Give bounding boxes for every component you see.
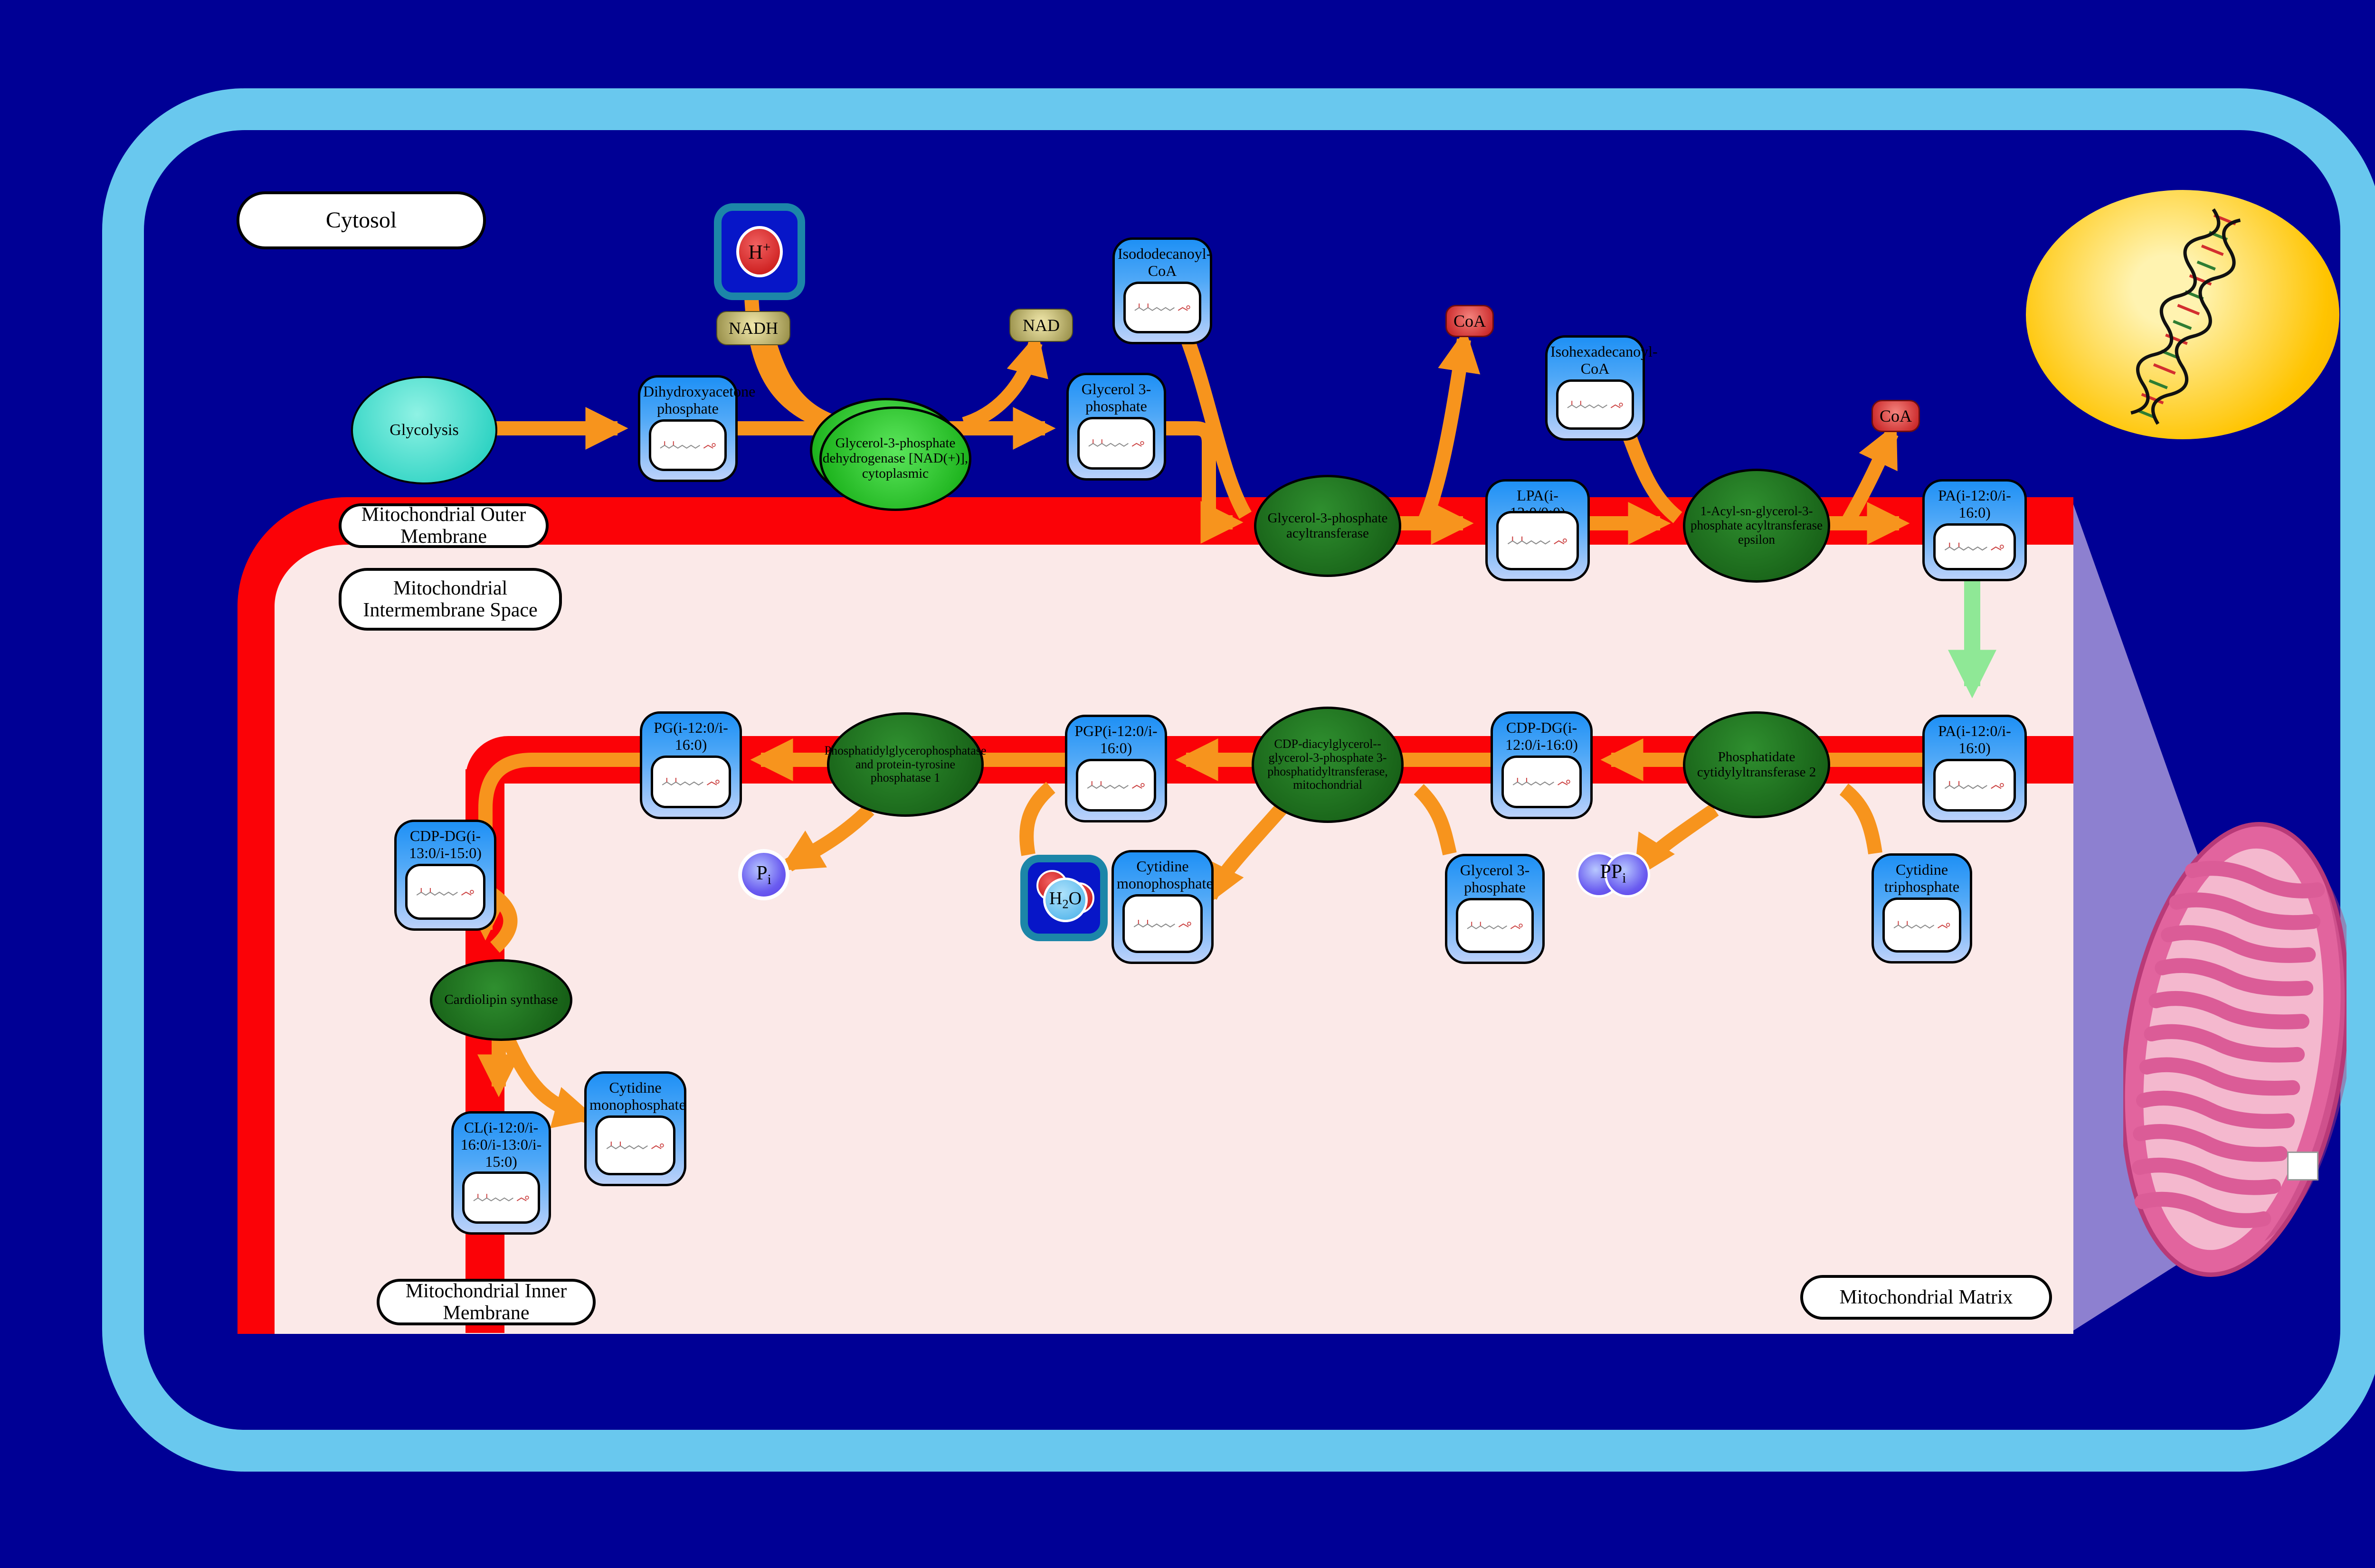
zoom-target-marker [2287,1152,2318,1181]
node-cdpdg-13-15[interactable]: CDP-DG(i-13:0/i-15:0) [394,820,496,931]
structure-image [595,1115,675,1175]
structure-image [1123,282,1201,333]
node-lpa[interactable]: LPA(i-12:0/0:0) [1485,479,1590,581]
node-cmp-bottom[interactable]: Cytidine monophosphate [584,1071,686,1186]
enzyme-gpd1[interactable]: Glycerol-3-phosphate dehydrogenase [NAD(… [819,406,971,511]
enzyme-pgs1[interactable]: CDP-diacylglycerol--glycerol-3-phosphate… [1252,707,1404,823]
node-pa-inner[interactable]: PA(i-12:0/i-16:0) [1922,715,2027,822]
label-cytosol: Cytosol [237,191,486,249]
process-glycolysis[interactable]: Glycolysis [351,376,497,484]
label-inner-membrane: Mitochondrial Inner Membrane [377,1279,596,1325]
enzyme-agpat-epsilon[interactable]: 1-Acyl-sn-glycerol-3-phosphate acyltrans… [1683,469,1830,583]
structure-image [1933,523,2016,570]
ion-ppi[interactable]: PPi [1576,851,1650,897]
enzyme-gpat[interactable]: Glycerol-3-phosphate acyltransferase [1254,475,1401,577]
pathway-canvas: Cytosol Mitochondrial Outer Membrane Mit… [0,0,2375,1568]
node-cardiolipin[interactable]: CL(i-12:0/i-16:0/i-13:0/i-15:0) [451,1111,551,1235]
node-glycerol-3-phosphate-top[interactable]: Glycerol 3-phosphate [1066,373,1166,481]
cofactor-nad[interactable]: NAD [1009,309,1073,342]
mitochondrion-illustration [2123,814,2346,1285]
structure-image [1556,379,1634,430]
node-isododecanoyl-coa[interactable]: Isododecanoyl-CoA [1112,237,1212,344]
node-pa-outer[interactable]: PA(i-12:0/i-16:0) [1922,479,2027,581]
label-outer-membrane: Mitochondrial Outer Membrane [339,503,549,548]
enzyme-ptpmt1[interactable]: Phosphatidylglycerophosphatase and prote… [827,712,984,817]
dna-helix-icon [2114,204,2256,432]
node-glycerol-3-phosphate-bottom[interactable]: Glycerol 3-phosphate [1445,854,1545,964]
structure-image [1501,756,1582,808]
structure-image [1933,759,2016,812]
node-dhap[interactable]: Dihydroxyacetone phosphate [638,375,738,482]
node-cmp-middle[interactable]: Cytidine monophosphate [1111,850,1214,964]
node-pgp[interactable]: PGP(i-12:0/i-16:0) [1065,715,1167,822]
molecule-h2o[interactable]: H2O [1020,855,1108,941]
structure-image [1882,897,1961,953]
cofactor-nadh[interactable]: NADH [716,311,790,345]
ion-h-plus[interactable]: H+ [714,203,805,300]
label-intermembrane-space: Mitochondrial Intermembrane Space [339,568,562,631]
cofactor-coa-1[interactable]: CoA [1445,305,1494,337]
structure-image [462,1171,540,1224]
enzyme-cds2[interactable]: Phosphatidate cytidylyltransferase 2 [1683,711,1830,818]
label-matrix: Mitochondrial Matrix [1800,1275,2052,1320]
structure-image [405,864,485,920]
structure-image [1076,759,1156,812]
node-isohexadecanoyl-coa[interactable]: Isohexadecanoyl-CoA [1545,335,1645,441]
cofactor-coa-2[interactable]: CoA [1871,400,1920,432]
structure-image [1456,898,1534,953]
structure-image [1122,894,1203,953]
node-pg[interactable]: PG(i-12:0/i-16:0) [640,711,742,819]
node-cdpdg-12-16[interactable]: CDP-DG(i-12:0/i-16:0) [1491,711,1593,819]
node-ctp[interactable]: Cytidine triphosphate [1871,853,1972,963]
structure-image [649,419,727,471]
structure-image [651,756,731,808]
water-icon: H2O [1035,872,1092,924]
structure-image [1496,511,1579,570]
ion-pi[interactable]: Pi [738,849,789,900]
enzyme-cardiolipin-synthase[interactable]: Cardiolipin synthase [430,959,572,1041]
structure-image [1077,417,1155,470]
